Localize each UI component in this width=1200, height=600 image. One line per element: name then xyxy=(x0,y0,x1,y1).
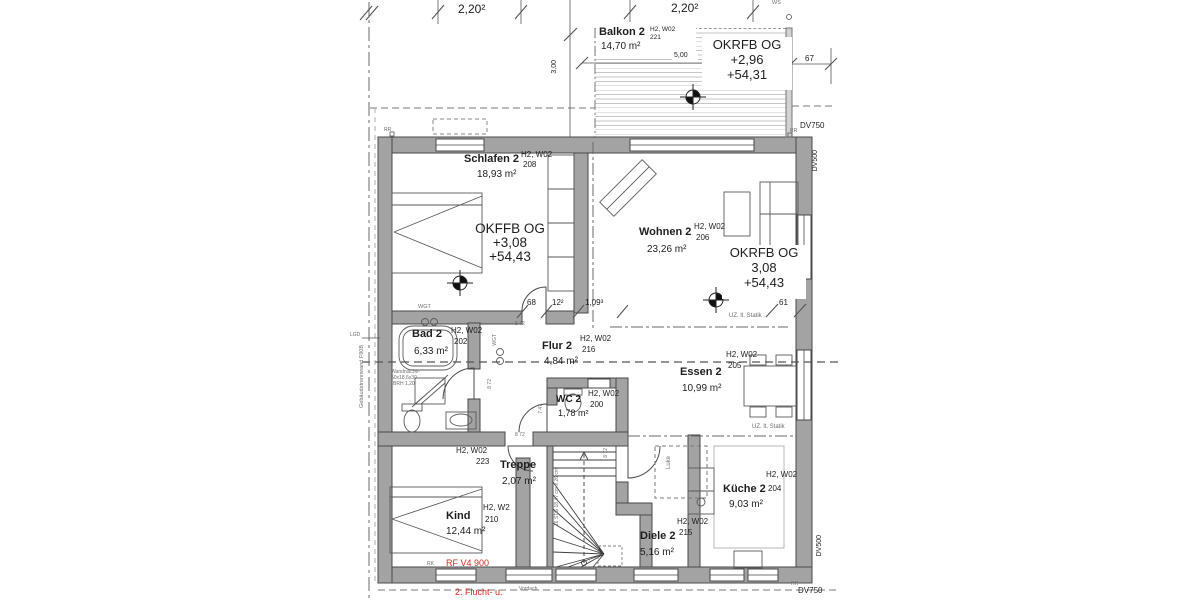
sideboard xyxy=(600,160,657,217)
rr-top-left: RR xyxy=(384,128,391,133)
room-num-kueche: 204 xyxy=(768,485,781,493)
dv500-bottom: DV500 xyxy=(816,535,823,556)
dim-220-right: 2,20² xyxy=(671,2,698,15)
room-ref-flur: H2, W02 xyxy=(580,335,611,343)
level-block-balkon: OKRFB OG +2,96 +54,31 xyxy=(702,37,792,90)
stairs xyxy=(553,446,622,567)
room-name-kind: Kind xyxy=(446,511,470,523)
vordach-label: Vordach xyxy=(519,587,537,592)
room-num-kind: 210 xyxy=(485,516,498,524)
dim-300: 3,00 xyxy=(551,60,558,74)
dim-12: 12² xyxy=(552,299,564,307)
level-wohnen-line1: OKRFB OG xyxy=(722,245,806,260)
rr-top-right: RR xyxy=(790,129,797,134)
room-name-schlafen: Schlafen 2 xyxy=(464,154,519,166)
room-ref-balkon: H2, W02 xyxy=(650,27,675,34)
level-schlafen-line2: +3,08 xyxy=(455,236,565,250)
room-num-treppe: 223 xyxy=(476,458,489,466)
room-area-diele: 5,16 m² xyxy=(640,548,674,559)
lgd-label: LGD xyxy=(350,333,360,338)
dim-68: 68 xyxy=(527,299,536,307)
room-name-wc: WC 2 xyxy=(556,395,581,406)
room-name-diele: Diele 2 xyxy=(640,531,675,543)
room-area-kueche: 9,03 m² xyxy=(729,500,763,511)
room-area-wohnen: 23,26 m² xyxy=(647,245,686,256)
stair-spec-label: 16 STG 18,47 cm x 26 cm xyxy=(555,468,560,526)
trennwand-label: Gebäudetrennwand F90B xyxy=(360,345,366,408)
room-ref-wc: H2, W02 xyxy=(588,390,619,398)
level-block-wohnen: OKRFB OG 3,08 +54,43 xyxy=(722,245,806,299)
room-ref-essen: H2, W02 xyxy=(726,351,757,359)
room-num-flur: 216 xyxy=(582,346,595,354)
room-ref-wohnen: H2, W02 xyxy=(694,223,725,231)
room-ref-diele: H2, W02 xyxy=(677,518,708,526)
room-num-bad: 202 xyxy=(454,338,467,346)
dim-872-c: 8 72 xyxy=(488,379,493,389)
level-wohnen-line3: +54,43 xyxy=(722,275,806,290)
dim-872-d: 8 72 xyxy=(604,448,609,458)
dim-61: 61 xyxy=(779,299,788,307)
level-balkon-line2: +2,96 xyxy=(702,52,792,67)
dim-109: 1,09³ xyxy=(585,299,603,307)
level-balkon-line1: OKRFB OG xyxy=(702,37,792,52)
room-ref-treppe: H2, W02 xyxy=(456,447,487,455)
dim-747: 7 47 xyxy=(539,404,544,414)
dv750-bottom: DV750 xyxy=(798,587,822,595)
survey-point-icon xyxy=(447,270,473,296)
rf-v4-label: RF V4 900 xyxy=(446,559,489,568)
dim-872-b: 8 72 xyxy=(515,433,525,438)
room-area-treppe: 2,07 m² xyxy=(502,477,536,488)
dv750-top: DV750 xyxy=(800,122,824,130)
room-name-wohnen: Wohnen 2 xyxy=(639,227,691,239)
level-schlafen-line3: +54,43 xyxy=(455,250,565,264)
room-name-flur: Flur 2 xyxy=(542,341,572,353)
level-schlafen-line1: OKFFB OG xyxy=(455,222,565,236)
room-ref-schlafen: H2, W02 xyxy=(521,151,552,159)
room-area-schlafen: 18,93 m² xyxy=(477,170,516,181)
room-area-balkon: 14,70 m² xyxy=(601,42,640,53)
room-area-flur: 4,84 m² xyxy=(544,357,578,368)
room-area-kind: 12,44 m² xyxy=(446,527,485,538)
room-name-essen: Essen 2 xyxy=(680,367,722,379)
room-num-schlafen: 208 xyxy=(523,161,536,169)
room-ref-bad: H2, W02 xyxy=(451,327,482,335)
wgt-label-h: WGT xyxy=(418,305,431,311)
dim-220-left: 2,20² xyxy=(458,3,485,16)
luke-label: Luke xyxy=(666,456,672,469)
floorplan-canvas: 2,20² 2,20² WS Balkon 2 H2, W02 221 14,7… xyxy=(0,0,1200,600)
rk-label: RK xyxy=(427,562,434,567)
room-num-diele: 215 xyxy=(679,529,692,537)
uz-statik-2: UZ. lt. Statik xyxy=(752,424,785,430)
dim-872-a: 8 72 xyxy=(515,322,525,327)
ws-label: WS xyxy=(772,1,781,7)
level-balkon-line3: +54,31 xyxy=(702,67,792,82)
dim-67: 67 xyxy=(805,55,814,63)
wandnische-line3: BRH 1,20 xyxy=(393,382,415,387)
room-area-bad: 6,33 m² xyxy=(414,347,448,358)
room-name-bad: Bad 2 xyxy=(412,329,442,341)
room-area-wc: 1,78 m² xyxy=(558,409,589,418)
uz-statik-1: UZ. lt. Statik xyxy=(729,313,762,319)
wgt-label-v: WGT xyxy=(493,334,498,346)
level-block-schlafen: OKFFB OG +3,08 +54,43 xyxy=(455,222,565,265)
room-num-balkon: 221 xyxy=(650,35,661,42)
room-area-essen: 10,99 m² xyxy=(682,384,721,395)
room-num-wc: 200 xyxy=(590,401,603,409)
room-num-wohnen: 206 xyxy=(696,234,709,242)
dv500-top: DV500 xyxy=(812,150,819,171)
room-name-balkon: Balkon 2 xyxy=(599,27,645,39)
level-wohnen-line2: 3,08 xyxy=(722,260,806,275)
room-name-treppe: Treppe xyxy=(500,460,536,472)
dim-500: 5,00 xyxy=(674,52,688,59)
rr-bottom-right: RR xyxy=(791,582,798,587)
room-ref-kueche: H2, W02 xyxy=(766,471,797,479)
room-ref-kind: H2, W2 xyxy=(483,504,510,512)
room-name-kueche: Küche 2 xyxy=(723,484,766,496)
room-num-essen: 205 xyxy=(728,362,741,370)
fluchtweg-label: 2. Flucht- u. xyxy=(455,588,503,597)
